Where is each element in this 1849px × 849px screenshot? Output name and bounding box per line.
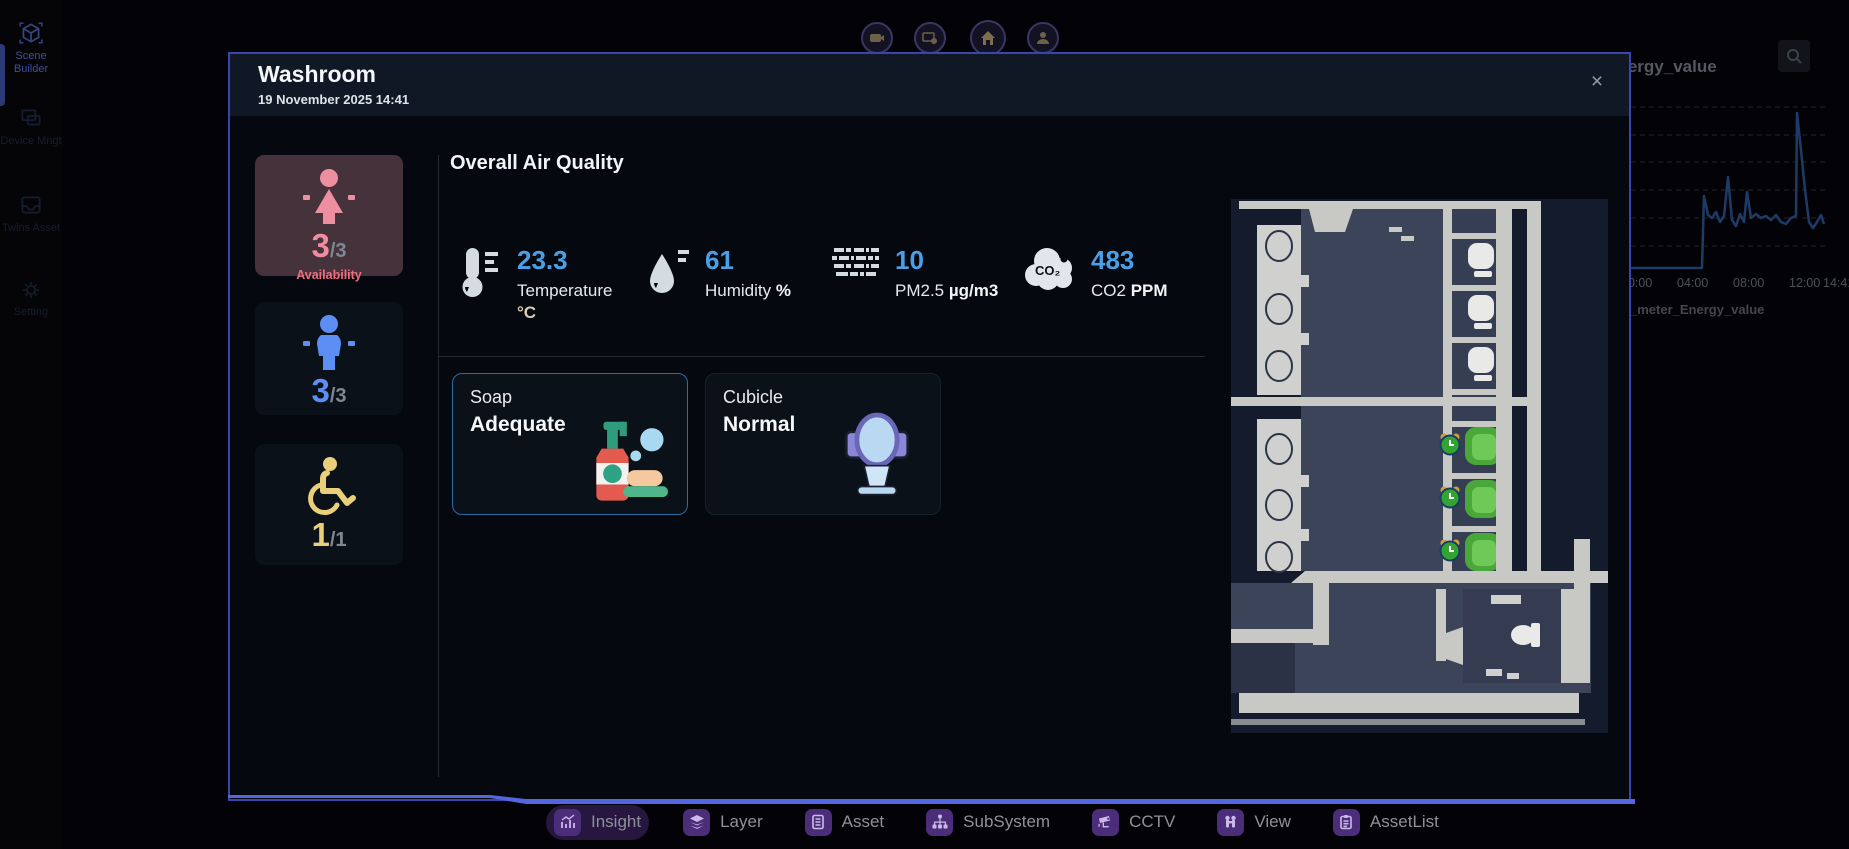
soap-status-card[interactable]: Soap Adequate	[452, 373, 688, 515]
metric-humidity: 61 Humidity %	[648, 246, 791, 302]
insight-chart-icon	[554, 809, 581, 836]
count-value: 1	[311, 516, 329, 553]
metric-label: Humidity %	[705, 280, 791, 302]
availability-caption: Availability	[255, 268, 403, 282]
female-icon	[303, 167, 355, 229]
x-tick: 14:41	[1823, 276, 1849, 290]
card-status: Adequate	[470, 413, 566, 437]
availability-count: 3/3	[255, 229, 403, 270]
metric-label: CO2 PPM	[1091, 280, 1168, 302]
toilet-stalls-top	[1468, 243, 1494, 381]
user-glyph-icon	[1035, 30, 1051, 46]
metric-texts: 23.3 Temperature°C	[517, 246, 612, 324]
metric-label-text: CO2	[1091, 281, 1126, 300]
availability-tile-male[interactable]: 3/3	[255, 302, 403, 415]
sidebar-item-label: Twins Asset	[0, 222, 62, 235]
count-total: /3	[330, 385, 347, 407]
bottom-toolbar: Insight Layer Asset SubSystem CCTV	[546, 802, 1447, 842]
toolbar-item-label: View	[1254, 812, 1291, 832]
availability-count: 1/1	[255, 518, 403, 559]
home-glyph-icon	[979, 29, 997, 47]
count-value: 3	[311, 372, 329, 409]
metric-co2: CO₂ 483 CO2 PPM	[1022, 246, 1168, 302]
male-icon	[303, 314, 355, 374]
metric-unit: PPM	[1131, 281, 1168, 300]
toilet-icon	[840, 412, 914, 500]
sidebar-item-label: Device Mngt	[0, 135, 62, 148]
metric-unit: %	[776, 281, 791, 300]
metric-label-text: Humidity	[705, 281, 771, 300]
modal-header: Washroom 19 November 2025 14:41 ×	[230, 54, 1629, 116]
metric-value: 483	[1091, 246, 1168, 274]
toolbar-item-label: Layer	[720, 812, 763, 832]
modal-bottom-accent	[228, 795, 1635, 804]
metric-value: 10	[895, 246, 998, 274]
asset-icon	[805, 809, 832, 836]
chart-legend: _meter_Energy_value	[1630, 302, 1764, 317]
air-quality-heading: Overall Air Quality	[450, 152, 624, 175]
metric-label-text: Temperature	[517, 281, 612, 300]
availability-tile-accessible[interactable]: 1/1	[255, 444, 403, 565]
card-title: Soap	[470, 387, 512, 408]
count-value: 3	[311, 227, 329, 264]
device-icon	[18, 105, 44, 131]
sidebar-item-setting[interactable]: Setting	[0, 278, 62, 319]
clock-markers	[1441, 434, 1460, 561]
toolbar-item-layer[interactable]: Layer	[675, 805, 771, 840]
droplet-icon	[648, 246, 690, 302]
toolbar-item-label: Insight	[591, 812, 641, 832]
camera-icon[interactable]	[861, 22, 893, 54]
green-occupied-stalls[interactable]	[1465, 427, 1501, 571]
metric-unit: °C	[517, 302, 612, 324]
availability-count: 3/3	[255, 374, 403, 415]
toolbar-item-assetlist[interactable]: AssetList	[1325, 805, 1447, 840]
sidebar: Scene Builder Device Mngt Twins Asset Se…	[0, 0, 62, 849]
co2-icon-text: CO₂	[1035, 263, 1061, 278]
toolbar-item-label: SubSystem	[963, 812, 1050, 832]
toolbar-item-subsystem[interactable]: SubSystem	[918, 805, 1058, 840]
metric-texts: 10 PM2.5 µg/m3	[895, 246, 998, 302]
metric-label: Temperature°C	[517, 280, 612, 324]
metric-label: PM2.5 µg/m3	[895, 280, 998, 302]
search-icon[interactable]	[1778, 40, 1810, 72]
horizontal-divider	[438, 356, 1205, 357]
cctv-icon	[1092, 809, 1119, 836]
cube-icon	[18, 20, 44, 46]
soap-bottle-icon	[579, 420, 671, 506]
toolbar-item-label: AssetList	[1370, 812, 1439, 832]
subsystem-icon	[926, 809, 953, 836]
app-root: Scene Builder Device Mngt Twins Asset Se…	[0, 0, 1849, 849]
cubicle-status-card[interactable]: Cubicle Normal	[705, 373, 941, 515]
x-tick: 12:00	[1789, 276, 1820, 290]
camera-glyph-icon	[869, 30, 885, 46]
toolbar-item-label: Asset	[842, 812, 885, 832]
washroom-modal: Washroom 19 November 2025 14:41 × 3/3 Av…	[228, 52, 1631, 801]
metric-pm25: 10 PM2.5 µg/m3	[832, 246, 998, 302]
modal-datetime: 19 November 2025 14:41	[258, 92, 409, 107]
layers-icon	[683, 809, 710, 836]
sink-row-bottom	[1266, 434, 1292, 572]
count-total: /3	[330, 240, 347, 262]
assetlist-icon	[1333, 809, 1360, 836]
sidebar-item-twins-asset[interactable]: Twins Asset	[0, 192, 62, 235]
count-total: /1	[330, 529, 347, 551]
x-tick: 04:00	[1677, 276, 1708, 290]
co2-cloud-icon: CO₂	[1022, 246, 1076, 292]
metric-temperature: 23.3 Temperature°C	[458, 246, 612, 324]
metric-value: 61	[705, 246, 791, 274]
sink-row-top	[1266, 231, 1292, 381]
home-icon[interactable]	[970, 20, 1006, 56]
washroom-floorplan[interactable]	[1231, 199, 1608, 733]
x-tick: 08:00	[1733, 276, 1764, 290]
air-vent-icon	[832, 246, 880, 284]
active-indicator	[0, 44, 5, 106]
magnifier-glyph-icon	[1785, 47, 1803, 65]
toolbar-item-view[interactable]: View	[1209, 805, 1299, 840]
sidebar-item-scene-builder[interactable]: Scene Builder	[0, 20, 62, 76]
view-icon	[1217, 809, 1244, 836]
metric-label-text: PM2.5	[895, 281, 944, 300]
toolbar-item-asset[interactable]: Asset	[797, 805, 893, 840]
metric-value: 23.3	[517, 246, 612, 274]
twins-asset-icon	[18, 192, 44, 218]
close-icon[interactable]: ×	[1583, 68, 1611, 96]
user-icon[interactable]	[1027, 22, 1059, 54]
toolbar-item-insight[interactable]: Insight	[546, 805, 649, 840]
card-title: Cubicle	[723, 387, 783, 408]
toolbar-item-cctv[interactable]: CCTV	[1084, 805, 1183, 840]
monitor-alert-icon[interactable]	[914, 22, 946, 54]
gear-icon	[19, 278, 43, 302]
metric-texts: 61 Humidity %	[705, 246, 791, 302]
toolbar-item-label: CCTV	[1129, 812, 1175, 832]
wheelchair-icon	[301, 456, 357, 518]
energy-line-chart	[1629, 95, 1847, 275]
metric-texts: 483 CO2 PPM	[1091, 246, 1168, 302]
sidebar-item-label: Setting	[0, 306, 62, 319]
thermometer-icon	[458, 246, 502, 302]
metric-unit: µg/m3	[949, 281, 998, 300]
modal-title: Washroom	[258, 61, 376, 88]
sidebar-item-device-mngt[interactable]: Device Mngt	[0, 105, 62, 148]
vertical-divider	[438, 155, 439, 777]
availability-tile-female[interactable]: 3/3 Availability	[255, 155, 403, 276]
sidebar-item-label: Scene Builder	[0, 50, 62, 76]
card-status: Normal	[723, 413, 795, 437]
monitor-alert-glyph-icon	[922, 30, 938, 46]
